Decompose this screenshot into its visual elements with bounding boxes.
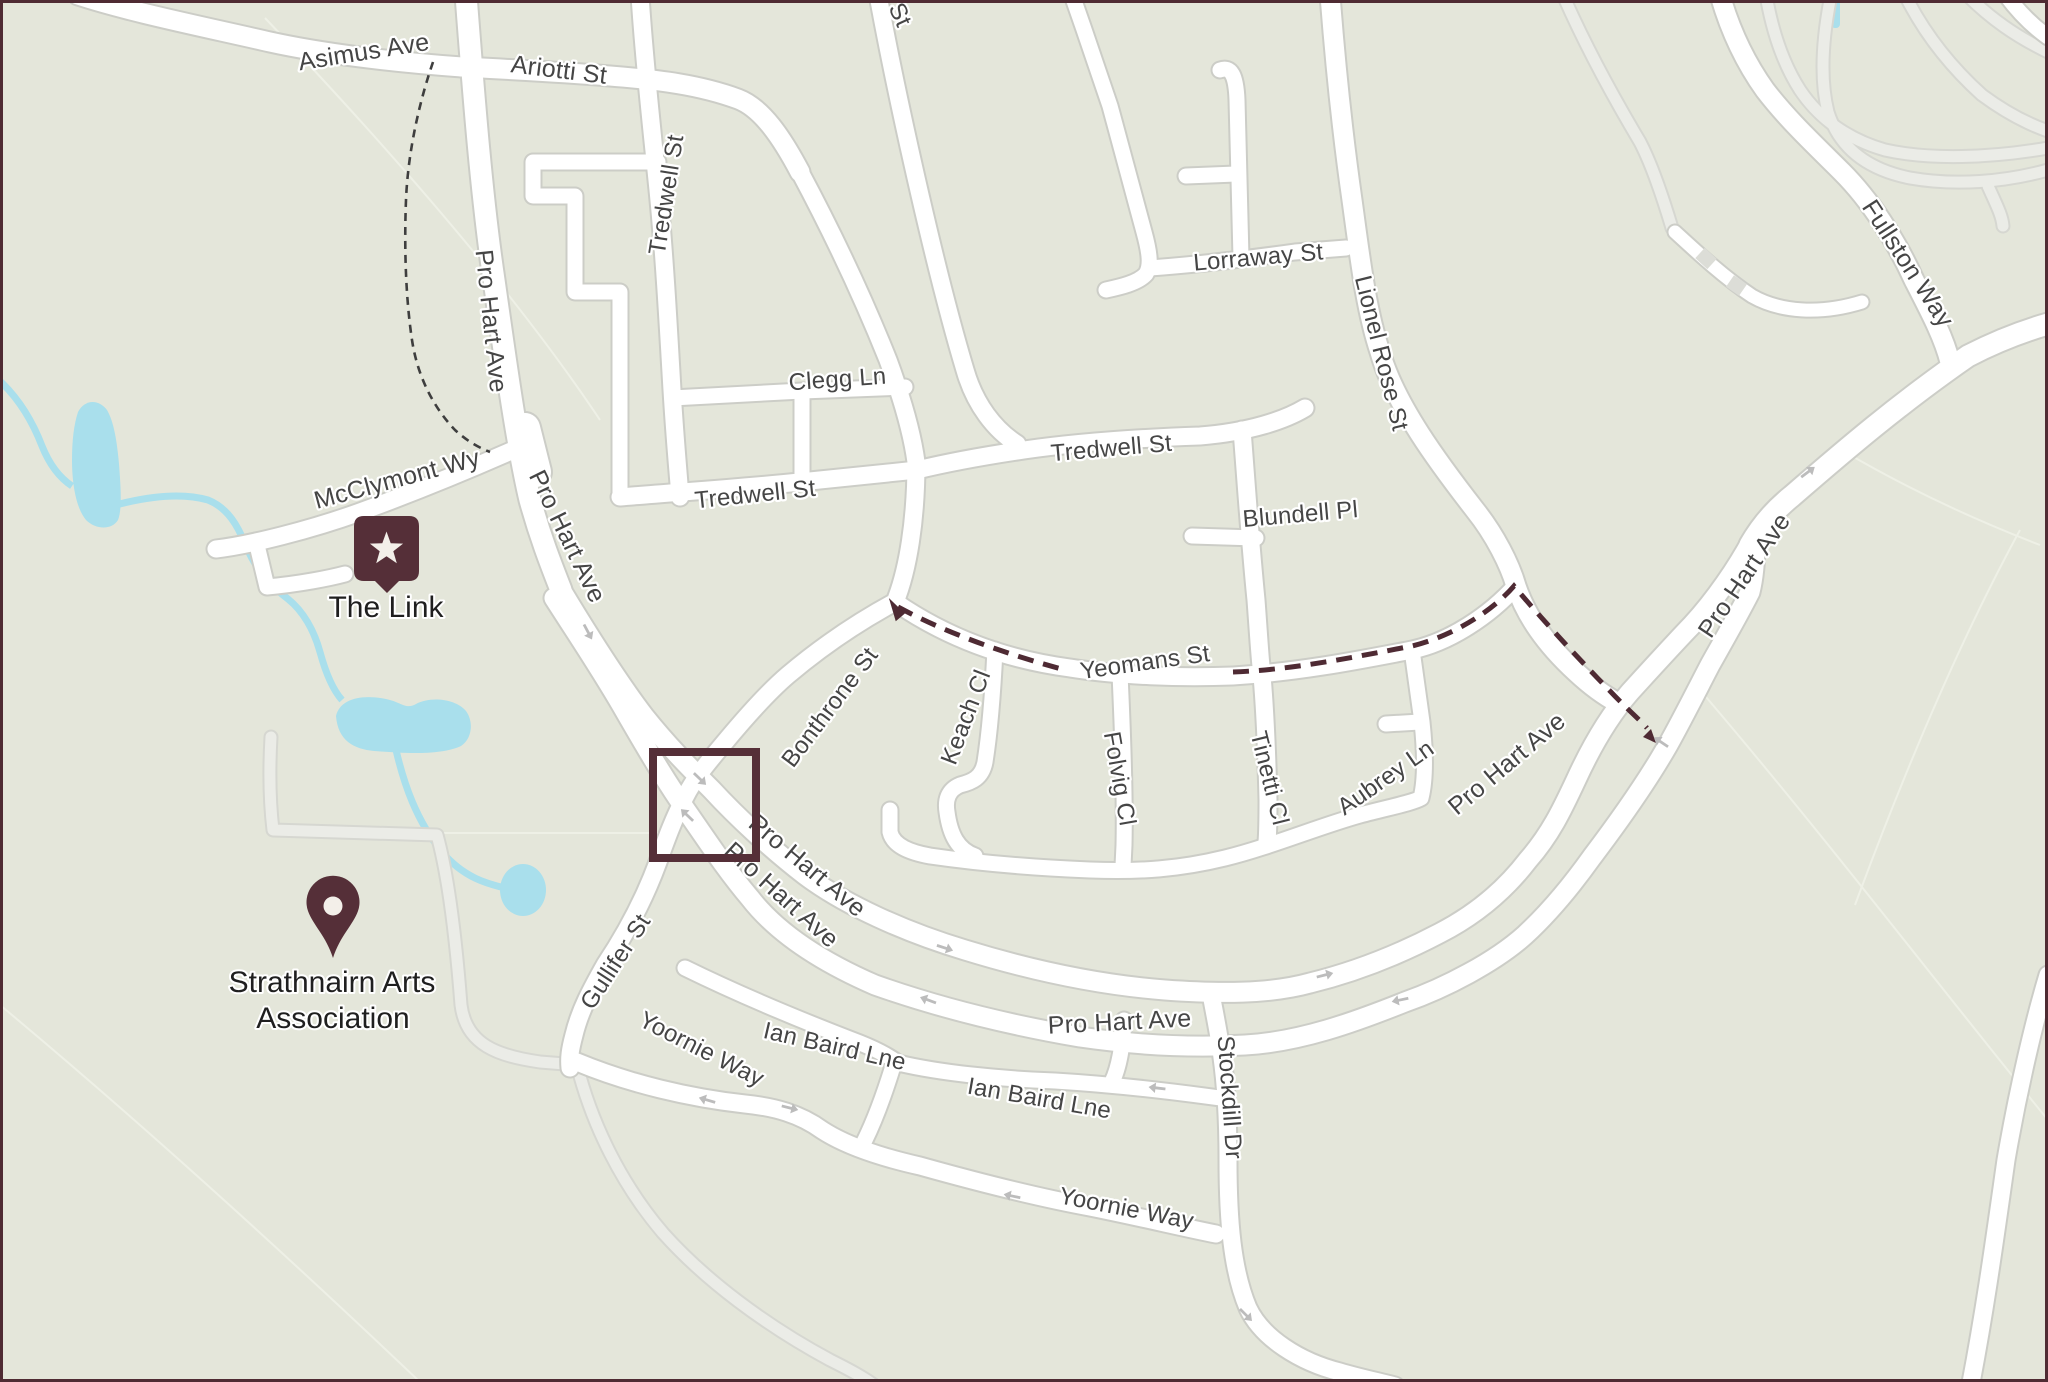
svg-text:Strathnairn Arts: Strathnairn Arts: [229, 966, 436, 999]
svg-text:The Link: The Link: [328, 591, 444, 624]
svg-text:Association: Association: [256, 1002, 409, 1035]
